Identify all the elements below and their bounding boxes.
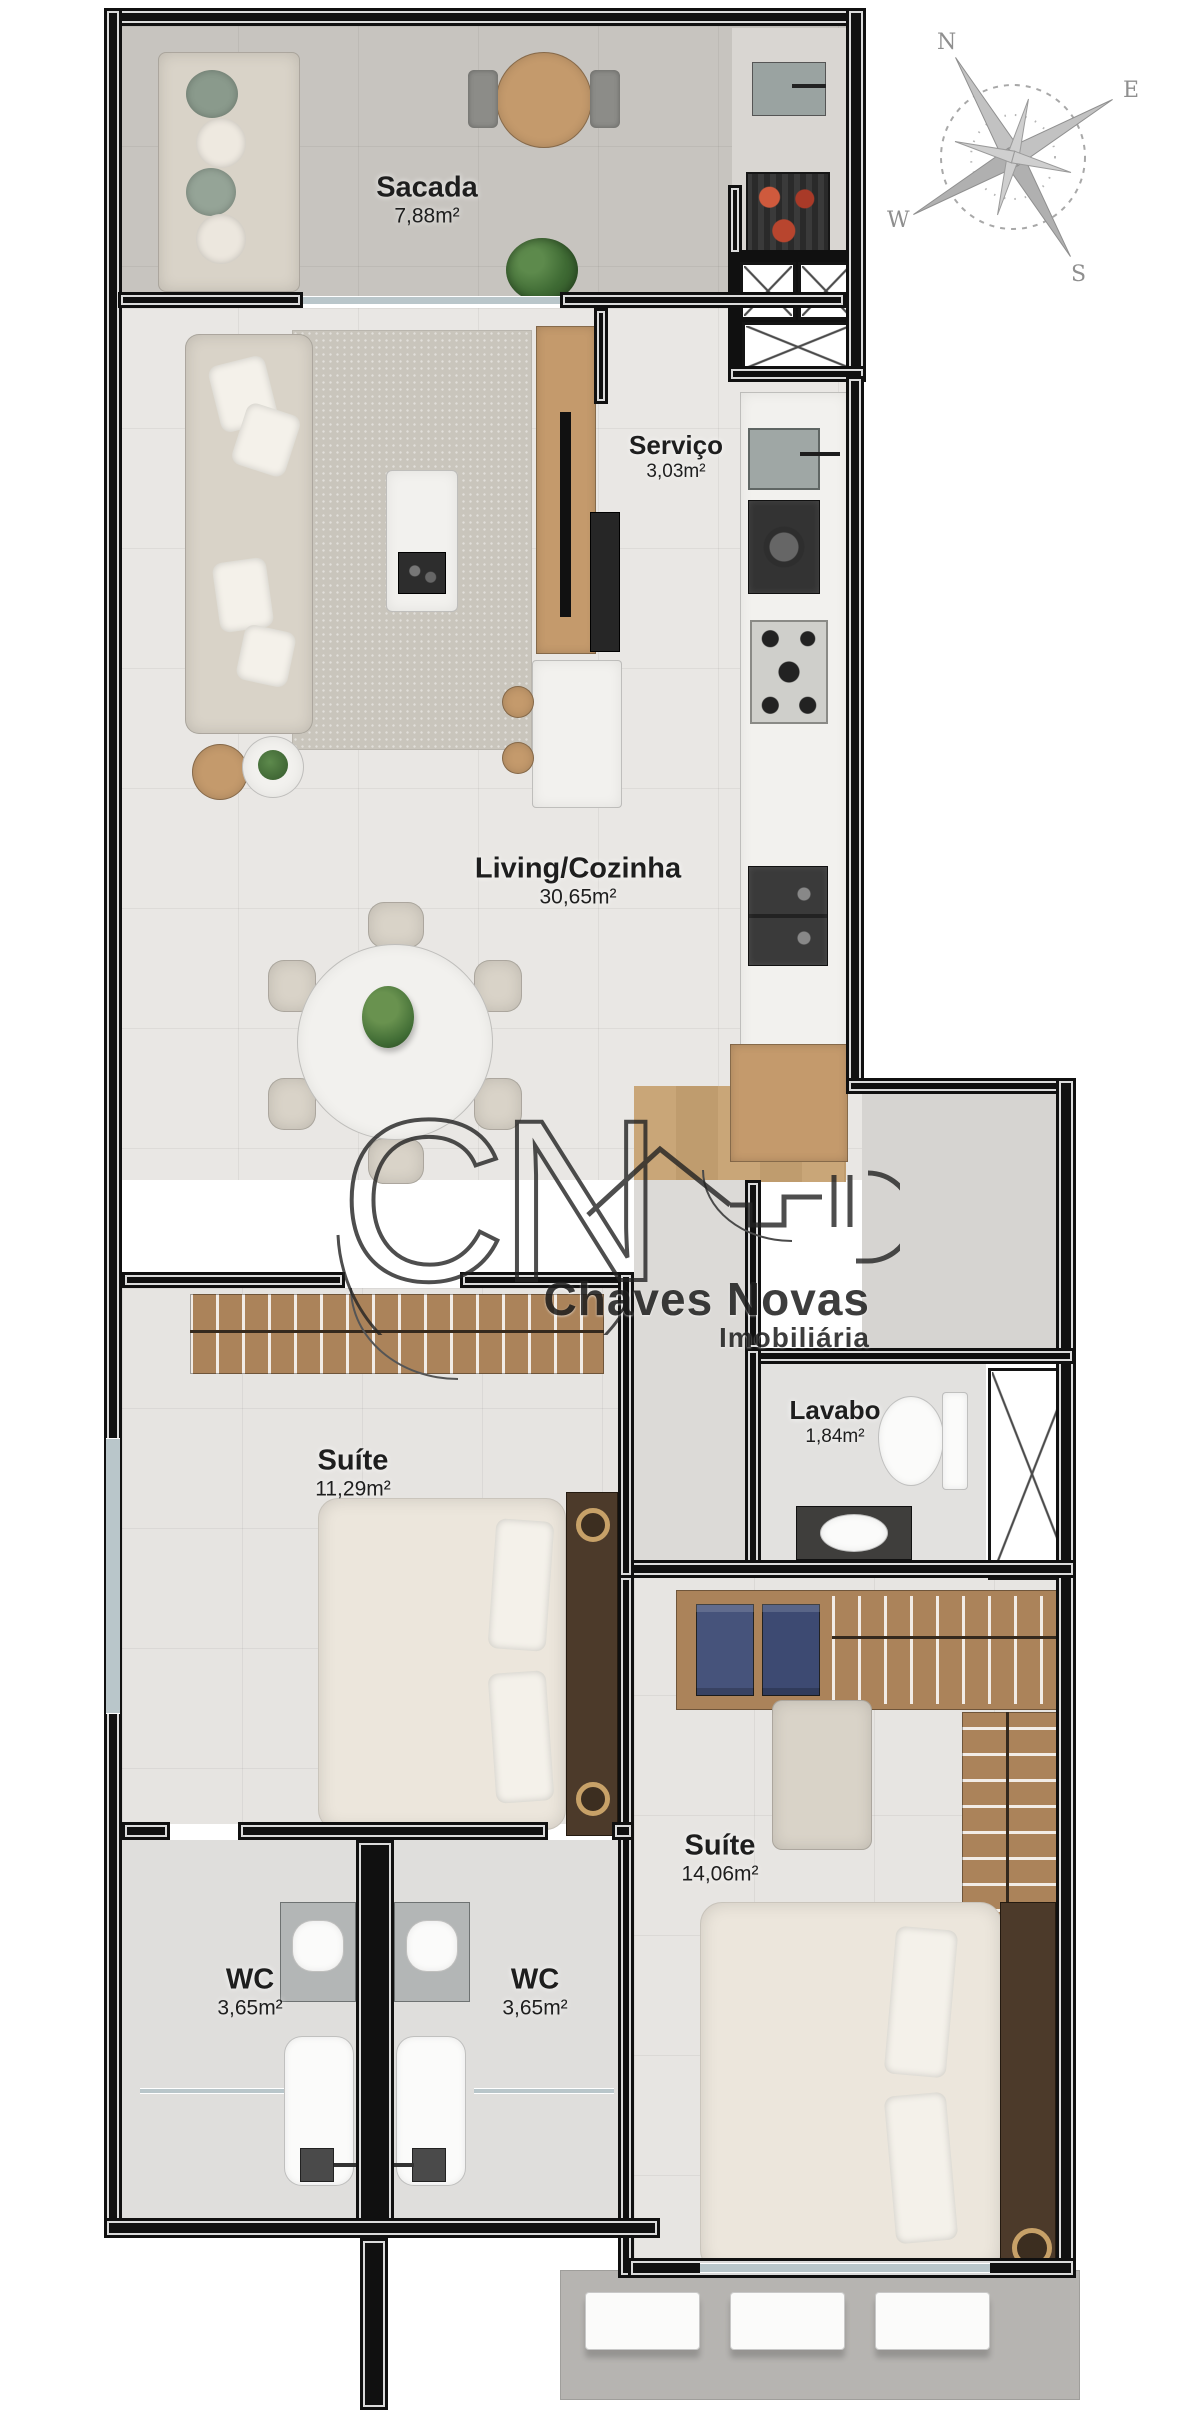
- cooktop: [750, 620, 828, 724]
- wall-t-stub: [360, 2238, 388, 2410]
- floor-plan: Sacada 7,88m² Serviço 3,03m² Living/Cozi…: [0, 0, 1178, 2412]
- suite2-pillow-1: [884, 1926, 959, 2079]
- wc-left-glass-shelf: [140, 2088, 286, 2094]
- grill-sink-faucet: [792, 84, 826, 88]
- washing-machine: [748, 500, 820, 594]
- balcony-sliding-door: [303, 296, 560, 305]
- room-area: 30,65m²: [475, 886, 681, 910]
- balcony-chair-right: [590, 70, 620, 128]
- room-name: WC: [217, 1963, 282, 1996]
- room-name: Living/Cozinha: [475, 852, 681, 885]
- suite2-closet-top-rod: [832, 1636, 1066, 1639]
- suite1-lamp-top: [576, 1508, 610, 1542]
- laundry-sink: [748, 428, 820, 490]
- room-label-wc-right: WC 3,65m²: [502, 1963, 567, 2020]
- wc-left-basin: [292, 1920, 344, 1972]
- room-name: Suíte: [681, 1829, 758, 1862]
- room-area: 1,84m²: [789, 1426, 880, 1448]
- room-name: WC: [502, 1963, 567, 1996]
- wall-balcony-living-right: [560, 292, 846, 308]
- wall-wc-divider: [356, 1840, 394, 2226]
- wall-balcony-living-left: [118, 292, 303, 308]
- compass-e: E: [1123, 78, 1139, 103]
- ac-unit-3: [875, 2292, 990, 2350]
- dining-chair-top: [368, 902, 424, 948]
- side-table-wood: [192, 744, 248, 800]
- wall-suite1-bottom-3: [612, 1822, 634, 1840]
- island-stool-1: [502, 686, 534, 718]
- oven: [748, 866, 828, 966]
- suite2-window: [700, 2263, 990, 2273]
- compass-s: S: [1071, 262, 1086, 287]
- coffee-table-tray: [398, 552, 446, 594]
- lavabo-toilet-tank: [942, 1392, 968, 1490]
- balcony-sofa-pillow-white-2: [196, 214, 246, 264]
- room-area: 11,29m²: [315, 1478, 390, 1502]
- dining-centerpiece-plant: [362, 986, 414, 1048]
- island-stool-2: [502, 742, 534, 774]
- living-sofa-pillow-3: [211, 557, 274, 634]
- suite1-pillow-1: [488, 1518, 555, 1652]
- balcony-sofa-pillow-white-1: [196, 118, 246, 168]
- balcony-chair-left: [468, 70, 498, 128]
- watermark-line1: Chaves Novas: [470, 1272, 870, 1326]
- room-label-lavabo: Lavabo 1,84m²: [789, 1396, 880, 1448]
- room-area: 3,65m²: [502, 1997, 567, 2021]
- room-label-living: Living/Cozinha 30,65m²: [475, 852, 681, 909]
- wall-kitchen-right: [846, 376, 864, 1092]
- room-label-suite1: Suíte 11,29m²: [315, 1444, 390, 1501]
- suite1-window: [106, 1438, 120, 1714]
- wall-suite1-top-left: [122, 1272, 345, 1288]
- room-name: Suíte: [315, 1444, 390, 1477]
- compass-n: N: [937, 30, 956, 55]
- suite2-bed-duvet: [700, 1902, 1002, 2272]
- side-table-plant: [258, 750, 288, 780]
- wall-wc-bottom: [104, 2218, 660, 2238]
- room-name: Sacada: [376, 171, 478, 204]
- balcony-round-table: [496, 52, 592, 148]
- suite2-pouf: [772, 1700, 872, 1850]
- wall-grill-left: [728, 185, 742, 255]
- balcony-sofa-pillow-green-1: [186, 70, 238, 118]
- room-label-servico: Serviço 3,03m²: [629, 431, 723, 483]
- wc-right-showerhead: [412, 2148, 446, 2182]
- suite2-pillow-2: [884, 2092, 959, 2245]
- suite1-lamp-bottom: [576, 1782, 610, 1816]
- room-area: 14,06m²: [681, 1863, 758, 1887]
- ac-unit-2: [730, 2292, 845, 2350]
- duct-shaft-small-1: [740, 262, 796, 320]
- duct-shaft-wide: [742, 322, 854, 372]
- suite2-folded-clothes-1: [696, 1604, 754, 1696]
- wall-lavabo-left: [745, 1348, 761, 1574]
- wall-right-upper: [846, 8, 866, 376]
- compass-rose-icon: N E S W: [880, 15, 1150, 295]
- wall-suite1-bottom-1: [122, 1822, 170, 1840]
- wall-suite1-bottom-2: [238, 1822, 548, 1840]
- room-label-wc-left: WC 3,65m²: [217, 1963, 282, 2020]
- wc-right-glass-shelf: [474, 2088, 614, 2094]
- kitchen-island: [532, 660, 622, 808]
- wc-right-basin: [406, 1920, 458, 1972]
- watermark-line2: Imobiliária: [470, 1322, 870, 1354]
- room-label-sacada: Sacada 7,88m²: [376, 171, 478, 228]
- laundry-faucet: [800, 452, 840, 456]
- room-label-suite2: Suíte 14,06m²: [681, 1829, 758, 1886]
- wall-suite2-top: [628, 1560, 1076, 1578]
- wall-top-outer: [104, 8, 864, 26]
- barbecue-grill: [746, 172, 830, 256]
- lavabo-sink-basin: [820, 1514, 888, 1552]
- wall-right-wing-outer: [1056, 1078, 1076, 2278]
- room-name: Serviço: [629, 431, 723, 461]
- suite1-pillow-2: [488, 1670, 555, 1804]
- wall-servico-stub: [594, 308, 608, 404]
- balcony-sofa-pillow-green-2: [186, 168, 236, 216]
- wc-left-showerhead: [300, 2148, 334, 2182]
- grill-sink: [752, 62, 826, 116]
- tv-screen: [560, 412, 571, 617]
- compass-w: W: [887, 208, 910, 233]
- pantry-cabinet: [590, 512, 620, 652]
- wall-left-outer: [104, 8, 122, 2234]
- ac-unit-1: [585, 2292, 700, 2350]
- room-area: 7,88m²: [376, 205, 478, 229]
- room-name: Lavabo: [789, 1396, 880, 1426]
- suite2-closet-top-hangers: [832, 1596, 1066, 1704]
- wall-suite2-left: [618, 1575, 634, 2278]
- room-area: 3,03m²: [629, 461, 723, 483]
- room-area: 3,65m²: [217, 1997, 282, 2021]
- suite2-headboard: [1000, 1902, 1056, 2272]
- suite2-folded-clothes-2: [762, 1604, 820, 1696]
